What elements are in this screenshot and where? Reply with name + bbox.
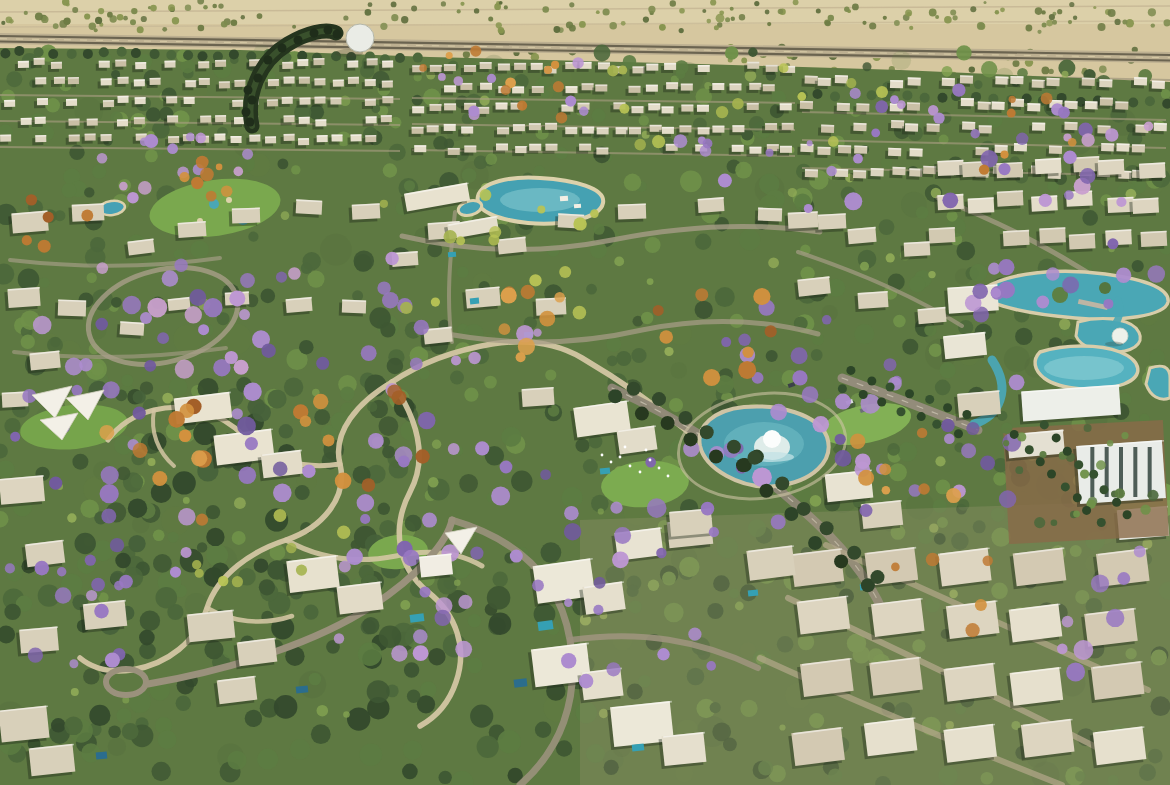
aerial-masterplan-render xyxy=(0,0,1170,785)
masterplan-aerial-scene xyxy=(0,0,1170,785)
